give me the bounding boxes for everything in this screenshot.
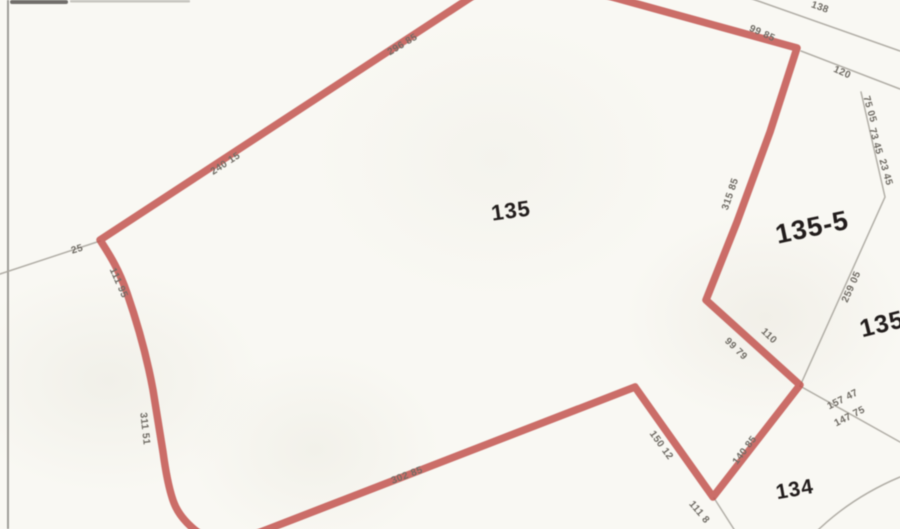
parcel-label-134: 134 (774, 475, 815, 504)
dimension-label: 110 (759, 326, 779, 346)
dimension-label: 75 05 (860, 95, 878, 124)
parcel-135-boundary-left (100, 0, 479, 529)
dimension-label: 302 85 (390, 465, 425, 487)
dimension-label: 259 05 (840, 270, 863, 305)
scan-top-smudge-faint (70, 0, 190, 3)
dimension-label: 140 85 (731, 434, 760, 467)
neighbor-line-west (0, 241, 100, 274)
plat-map: 240 15 296 85 99 85 138 120 75 05 73 45 … (0, 0, 900, 529)
parcel-label-135-east: 135 (857, 305, 900, 343)
dimension-label: 120 (832, 64, 853, 81)
dimension-label: 25 (70, 243, 85, 257)
dimension-label: 111 8 (686, 499, 711, 526)
dimension-label: 73 45 (866, 127, 884, 156)
dimension-label: 315 85 (720, 177, 741, 212)
dimension-label: 138 (810, 0, 831, 16)
neighbor-line-bottom-right-curve (814, 477, 900, 529)
scan-top-smudge (10, 0, 68, 4)
dimension-label: 296 85 (386, 32, 420, 58)
dimension-label: 311 51 (137, 412, 151, 445)
parcel-label-135-5: 135-5 (773, 205, 852, 250)
parcel-label-135-main: 135 (490, 195, 533, 225)
plat-map-page: 240 15 296 85 99 85 138 120 75 05 73 45 … (0, 0, 900, 529)
neighbor-line-below-valley (714, 498, 737, 529)
